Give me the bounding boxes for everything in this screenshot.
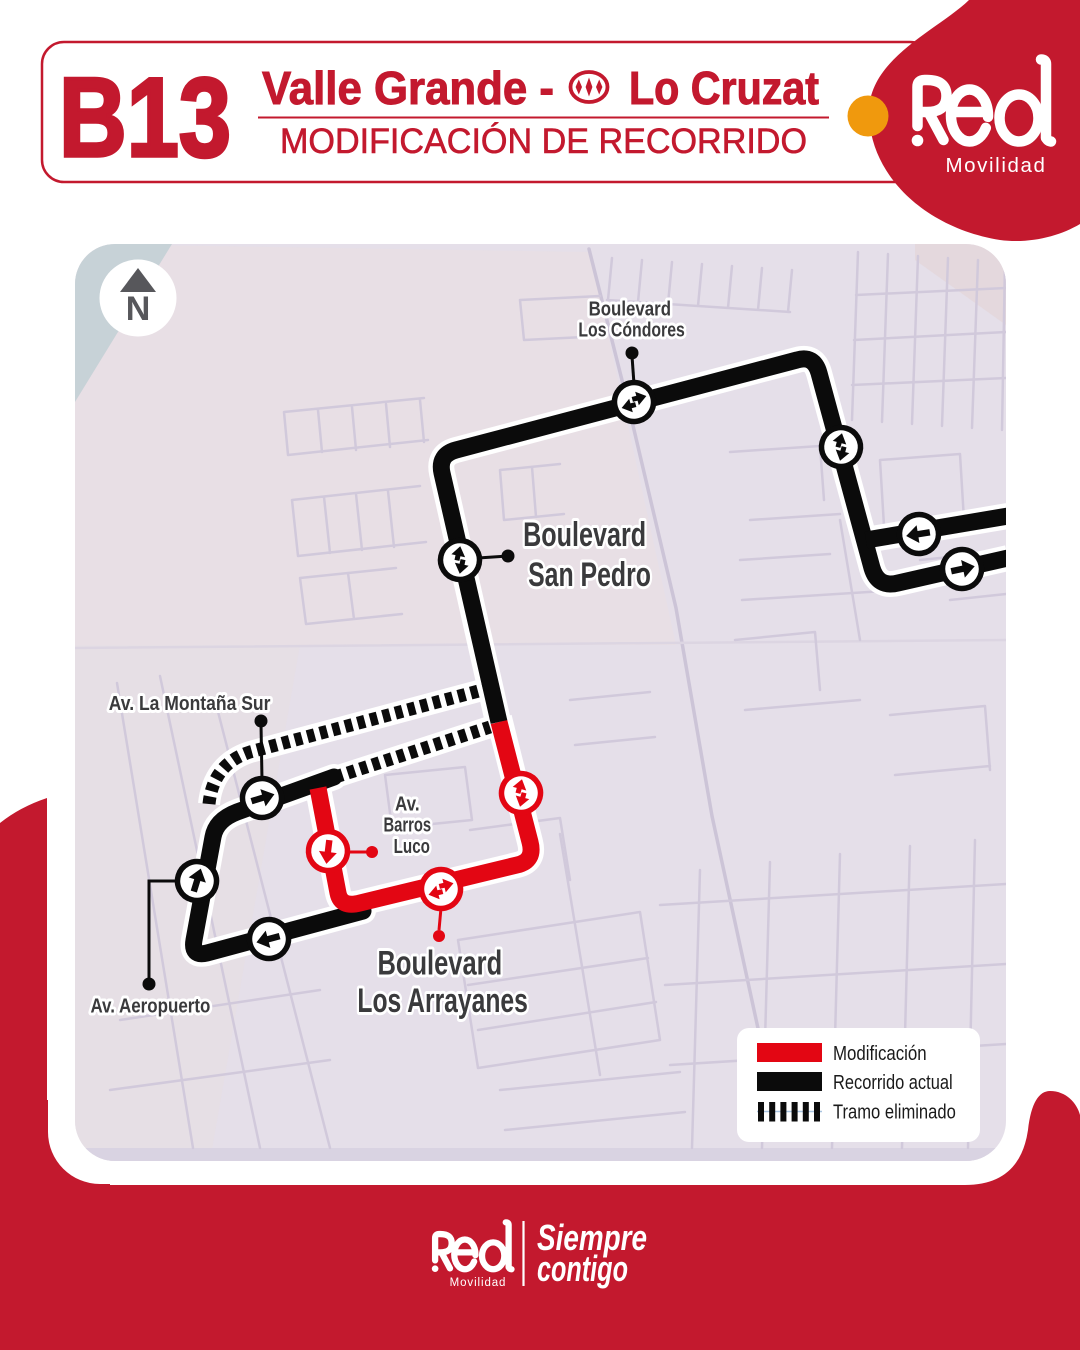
svg-text:Av.: Av. — [395, 792, 420, 815]
svg-text:Recorrido actual: Recorrido actual — [833, 1070, 953, 1093]
svg-text:Boulevard: Boulevard — [589, 297, 671, 320]
svg-text:Barros: Barros — [383, 813, 431, 836]
svg-text:Movilidad: Movilidad — [450, 1277, 507, 1289]
svg-text:B13: B13 — [59, 55, 231, 180]
svg-text:San Pedro: San Pedro — [528, 556, 651, 594]
svg-text:Los Cóndores: Los Cóndores — [578, 319, 684, 341]
svg-text:Los Arrayanes: Los Arrayanes — [357, 982, 527, 1020]
svg-text:contigo: contigo — [537, 1249, 628, 1290]
svg-text:Tramo eliminado: Tramo eliminado — [833, 1100, 956, 1123]
svg-text:Lo Cruzat: Lo Cruzat — [629, 62, 819, 114]
svg-text:Boulevard: Boulevard — [377, 945, 502, 982]
svg-text:Valle Grande -: Valle Grande - — [262, 62, 554, 114]
svg-text:Movilidad: Movilidad — [946, 154, 1047, 177]
svg-text:Boulevard: Boulevard — [523, 516, 646, 554]
svg-text:Modificación: Modificación — [833, 1042, 927, 1065]
svg-text:Av. La Montaña Sur: Av. La Montaña Sur — [109, 692, 271, 714]
svg-text:MODIFICACIÓN DE RECORRIDO: MODIFICACIÓN DE RECORRIDO — [280, 122, 807, 161]
svg-text:Av. Aeropuerto: Av. Aeropuerto — [90, 994, 210, 1017]
svg-text:N: N — [126, 290, 151, 328]
svg-text:Luco: Luco — [394, 835, 430, 858]
